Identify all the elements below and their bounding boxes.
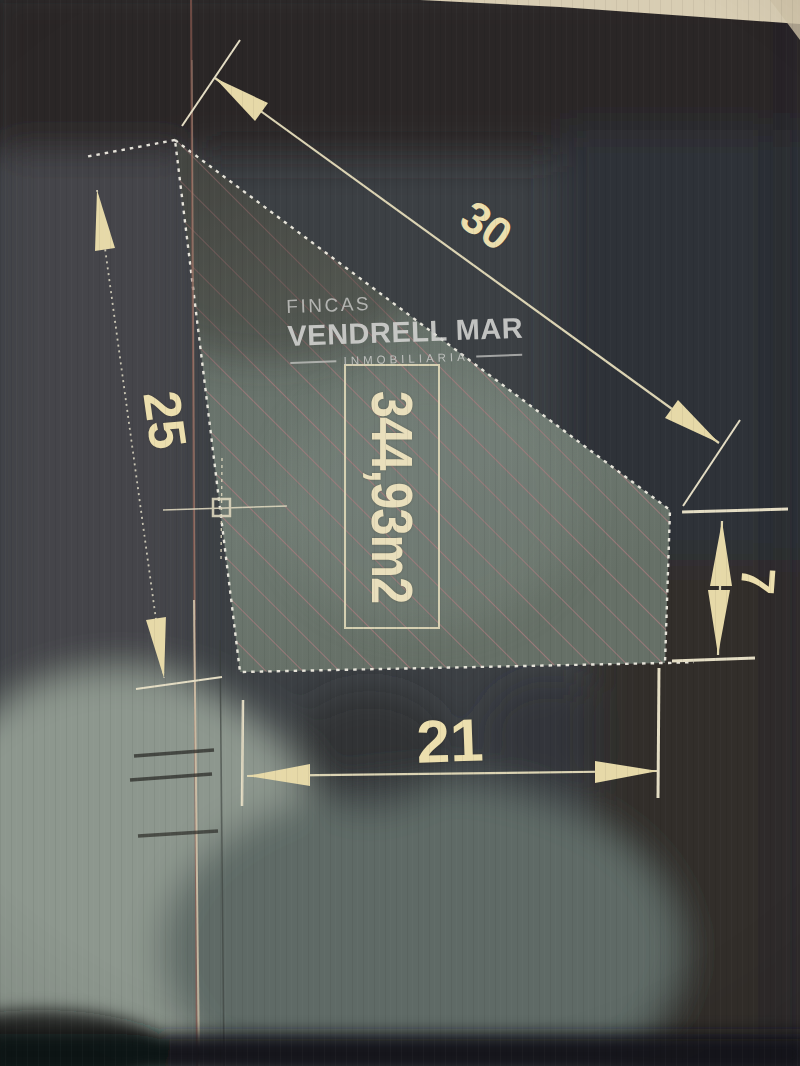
watermark-brand-main: VENDRELL MAR [287, 312, 524, 353]
dimension-label-left: 25 [131, 387, 198, 453]
watermark-rule-right [476, 354, 522, 358]
watermark-rule-left [291, 360, 337, 364]
area-label-box: 344,93m2 [344, 364, 440, 629]
watermark: FINCAS VENDRELL MAR INMOBILIARIA [286, 288, 524, 369]
dimension-label-bottom: 21 [415, 705, 484, 776]
plot-plan-photo: 30 25 7 21 344,93m2 FINCAS VENDRELL MAR … [0, 0, 800, 1066]
dimension-label-right: 7 [730, 566, 787, 596]
area-label: 344,93m2 [359, 390, 425, 603]
